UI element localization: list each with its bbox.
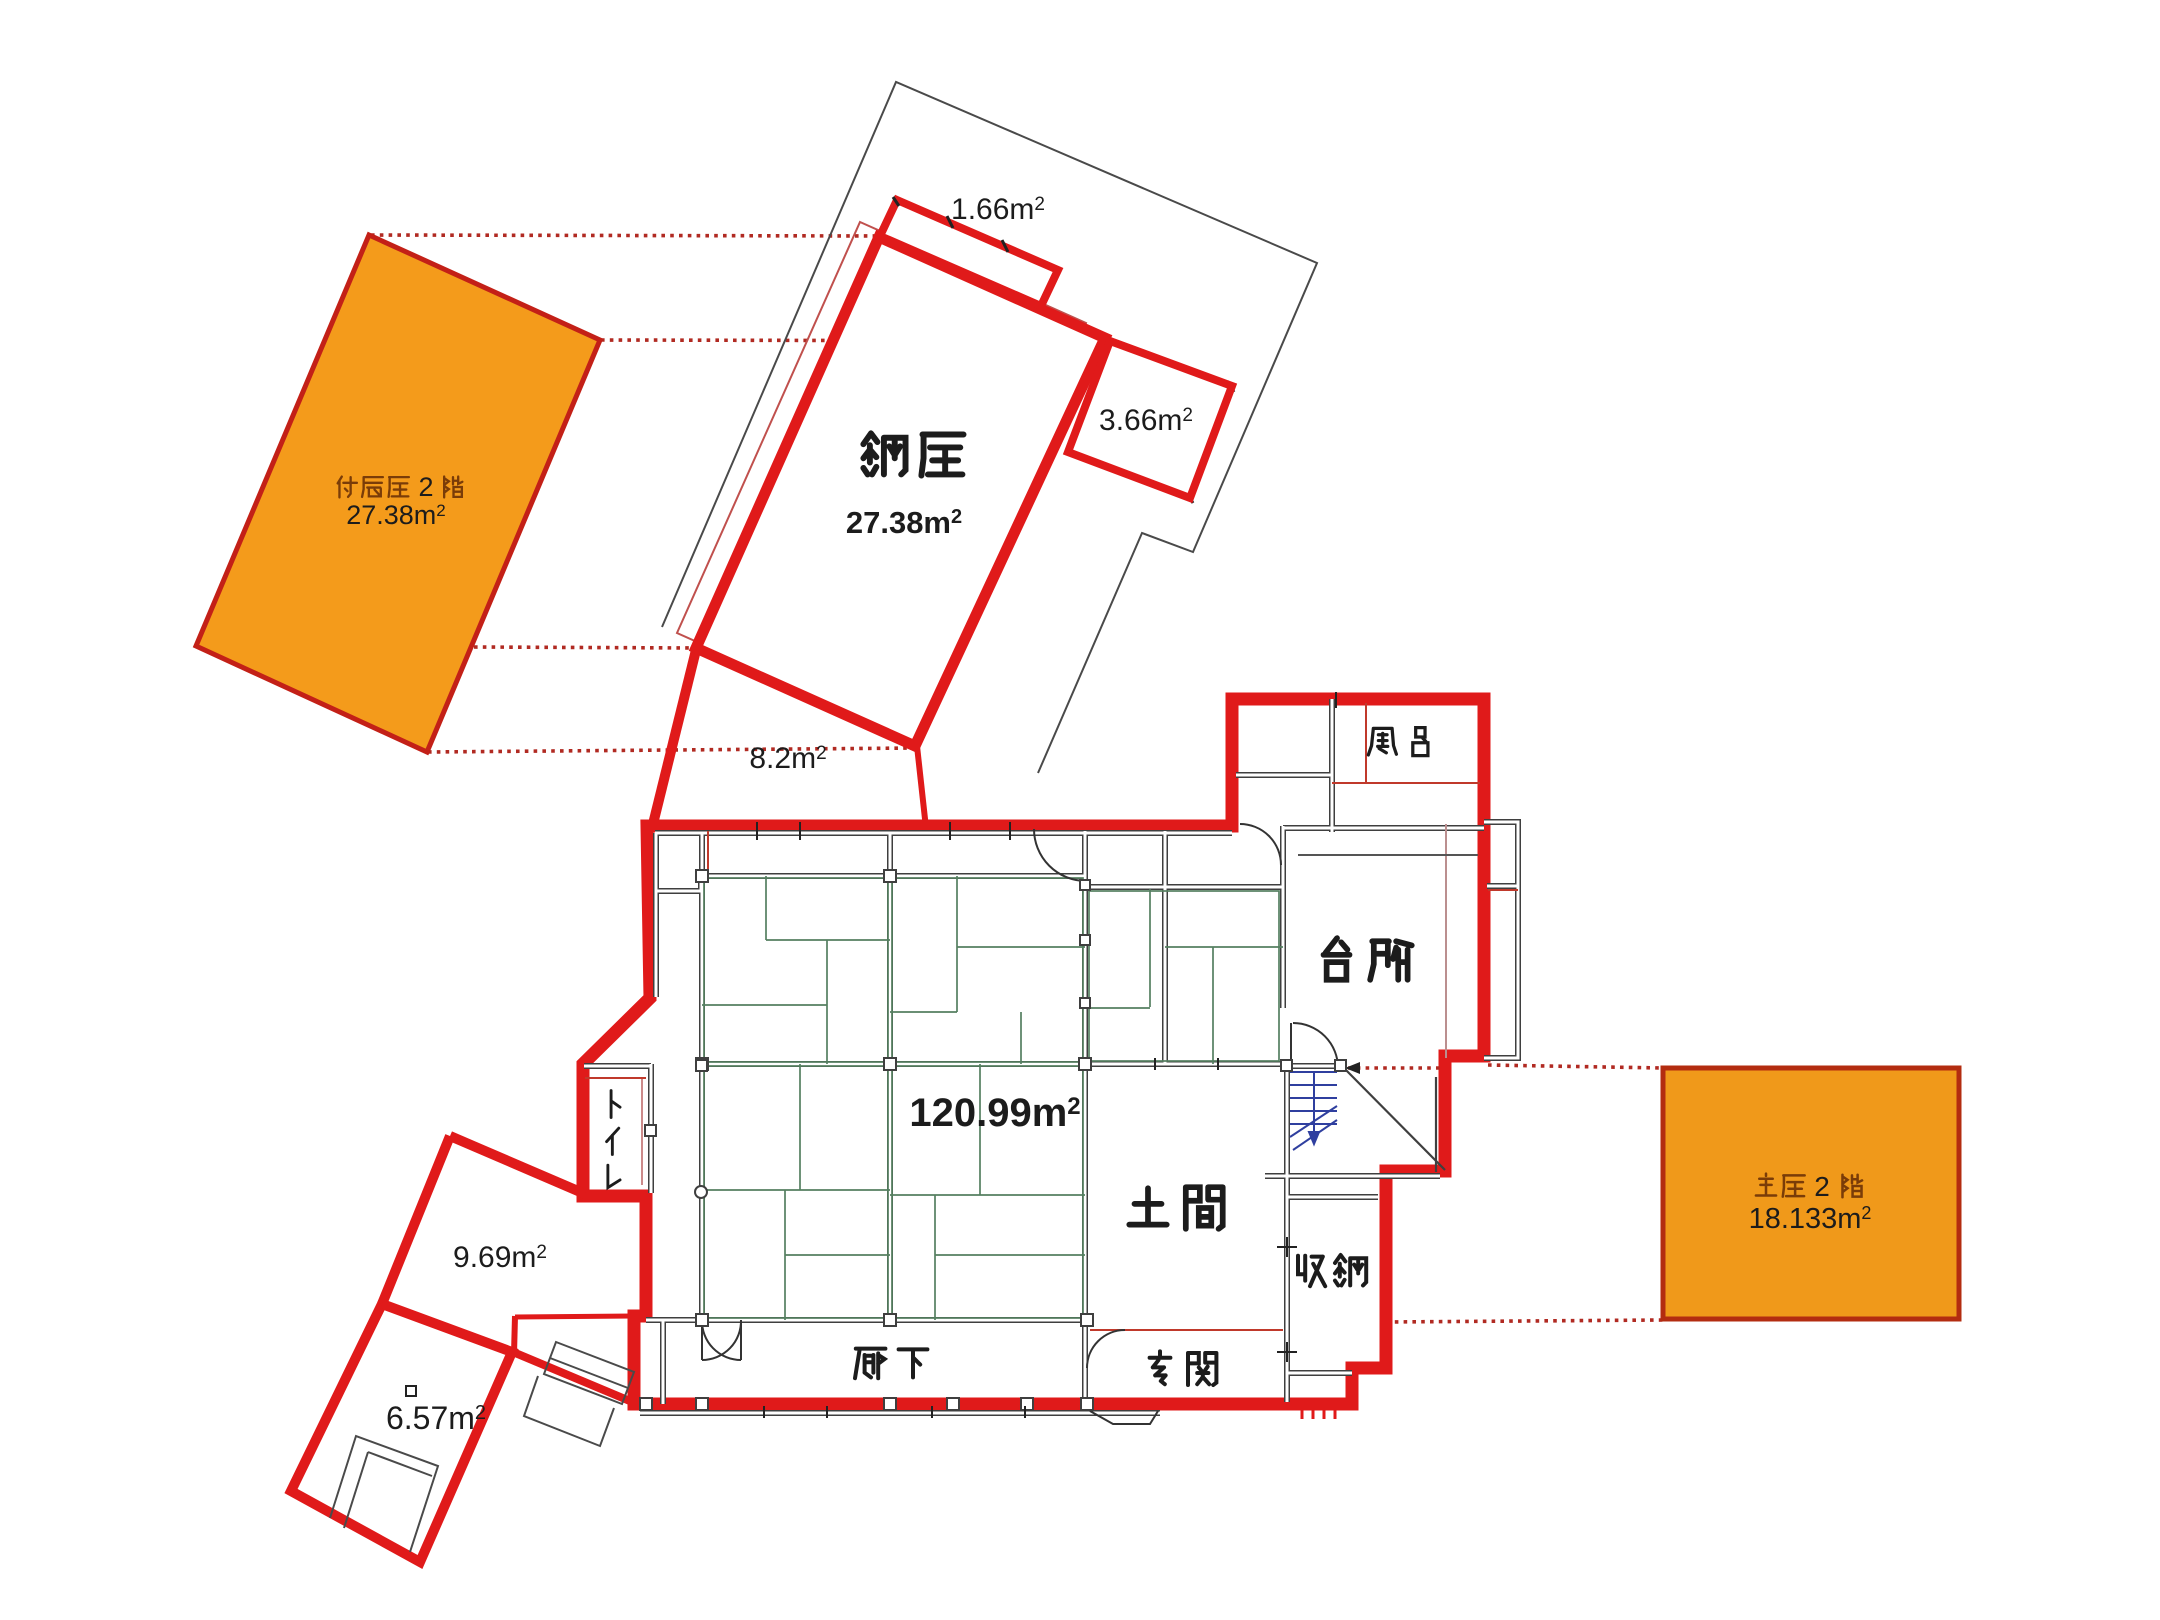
svg-text:27.38m2: 27.38m2 <box>346 500 446 530</box>
svg-text:27.38m2: 27.38m2 <box>846 505 962 540</box>
svg-text:6.57m2: 6.57m2 <box>386 1400 486 1436</box>
svg-text:8.2m2: 8.2m2 <box>749 742 826 775</box>
svg-text:3.66m2: 3.66m2 <box>1099 404 1193 437</box>
svg-text:1.66m2: 1.66m2 <box>951 193 1045 226</box>
svg-text:2: 2 <box>418 472 433 502</box>
svg-text:2: 2 <box>1814 1171 1830 1202</box>
svg-text:9.69m2: 9.69m2 <box>453 1241 547 1274</box>
svg-text:18.133m2: 18.133m2 <box>1749 1203 1872 1235</box>
svg-text:120.99m2: 120.99m2 <box>909 1091 1080 1135</box>
